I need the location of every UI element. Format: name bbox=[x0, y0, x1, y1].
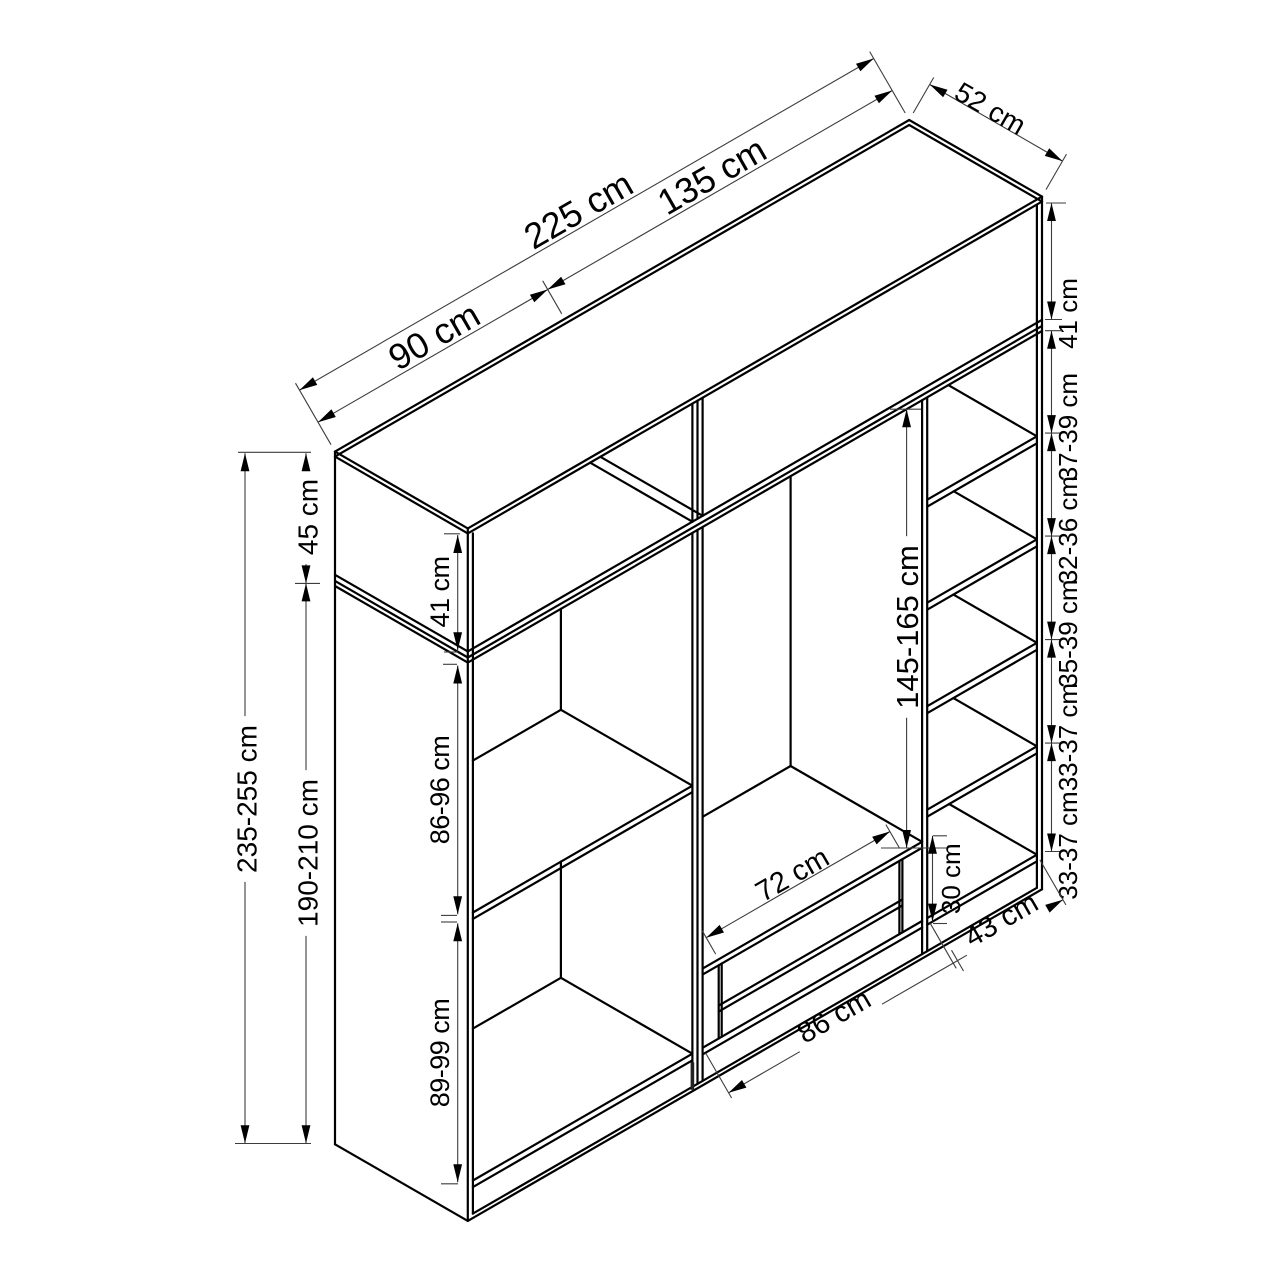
svg-text:190-210 cm: 190-210 cm bbox=[293, 779, 324, 927]
svg-text:235-255 cm: 235-255 cm bbox=[232, 725, 263, 873]
svg-text:41 cm: 41 cm bbox=[425, 556, 455, 627]
svg-text:37-39 cm: 37-39 cm bbox=[1053, 373, 1083, 481]
svg-text:30 cm: 30 cm bbox=[936, 843, 966, 914]
svg-text:145-165 cm: 145-165 cm bbox=[890, 545, 925, 709]
svg-text:45 cm: 45 cm bbox=[293, 479, 324, 555]
svg-text:32-36 cm: 32-36 cm bbox=[1053, 476, 1083, 584]
svg-text:33-37 cm: 33-37 cm bbox=[1053, 791, 1083, 899]
svg-text:89-99 cm: 89-99 cm bbox=[425, 999, 455, 1108]
svg-text:35-39 cm: 35-39 cm bbox=[1053, 579, 1083, 687]
svg-text:41 cm: 41 cm bbox=[1053, 278, 1083, 349]
svg-text:86-96 cm: 86-96 cm bbox=[425, 736, 455, 845]
svg-text:33-37 cm: 33-37 cm bbox=[1053, 683, 1083, 791]
